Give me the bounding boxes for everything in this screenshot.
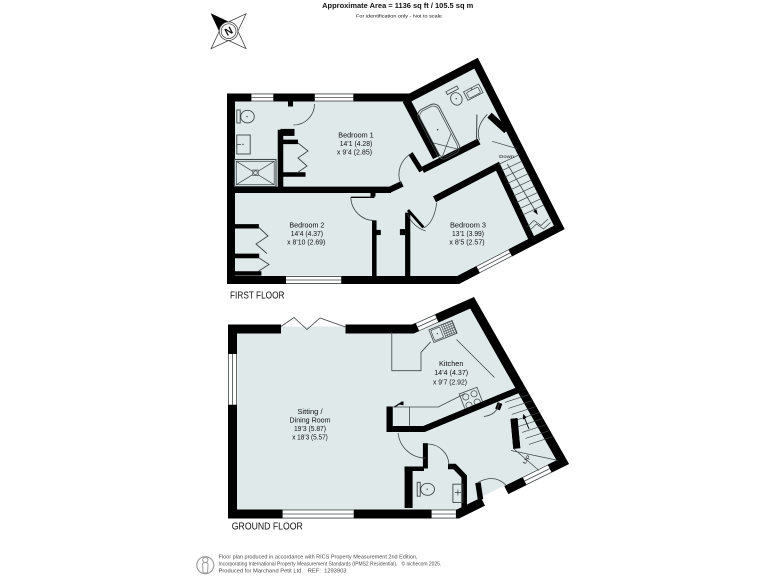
svg-text:FIRST FLOOR: FIRST FLOOR [230, 290, 285, 301]
svg-text:14’4 (4.37): 14’4 (4.37) [434, 368, 468, 377]
svg-text:x 8’5 (2.57): x 8’5 (2.57) [449, 238, 484, 247]
svg-text:14’1 (4.28): 14’1 (4.28) [340, 139, 373, 148]
svg-text:x 18’3 (5.57): x 18’3 (5.57) [292, 433, 328, 442]
svg-text:Produced for Marchand Petit Lt: Produced for Marchand Petit Ltd. REF: 12… [219, 569, 347, 575]
svg-text:GROUND FLOOR: GROUND FLOOR [232, 521, 303, 532]
svg-text:Incorporating International Pr: Incorporating International Property Mea… [219, 561, 442, 568]
svg-text:For identification only - Not: For identification only - Not to scale [356, 14, 442, 19]
svg-text:Down: Down [499, 154, 514, 159]
svg-text:Floor plan produced in accorda: Floor plan produced in accordance with R… [219, 555, 419, 561]
svg-text:x 9’7 (2.92): x 9’7 (2.92) [433, 378, 467, 387]
svg-text:x 8’10 (2.69): x 8’10 (2.69) [287, 238, 325, 247]
svg-text:Kitchen: Kitchen [439, 359, 463, 368]
svg-text:x 9’4 (2.85): x 9’4 (2.85) [337, 148, 372, 157]
svg-text:Approximate Area = 1136 sq ft: Approximate Area = 1136 sq ft / 105.5 sq… [322, 1, 474, 10]
